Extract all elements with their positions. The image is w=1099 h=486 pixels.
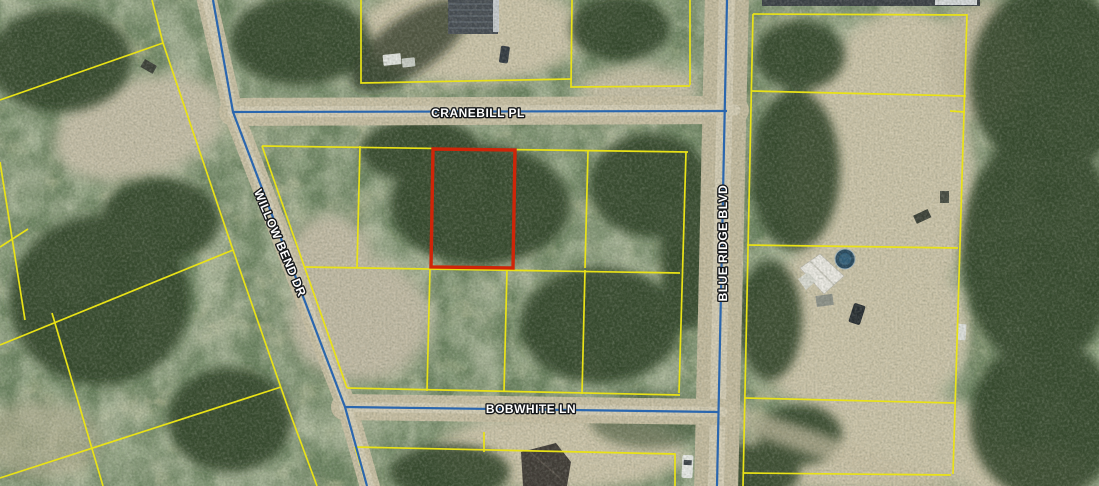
- parcel-boundary-line: [950, 111, 965, 112]
- aerial-parcel-map[interactable]: CRANEBILL PL WILLOW BEND DR BLUE RIDGE B…: [0, 0, 1099, 486]
- street-label-bobwhite-ln: BOBWHITE LN: [486, 402, 576, 416]
- street-label-cranebill-pl: CRANEBILL PL: [431, 106, 525, 120]
- street-label-blue-ridge-blvd: BLUE RIDGE BLVD: [716, 185, 730, 302]
- parcel-boundary-line: [753, 14, 967, 15]
